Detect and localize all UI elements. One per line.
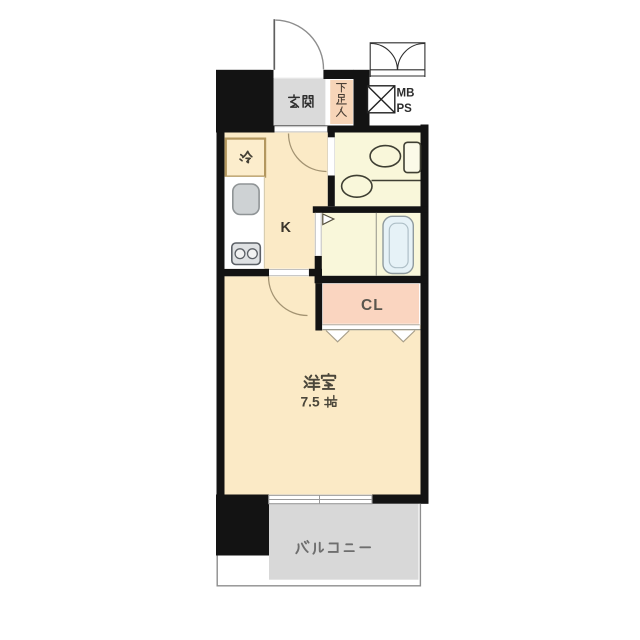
svg-text:PS: PS (397, 103, 413, 115)
svg-text:7.5: 7.5 (301, 395, 321, 410)
svg-text:CL: CL (361, 297, 384, 314)
svg-text:K: K (281, 220, 292, 236)
svg-text:MB: MB (397, 87, 415, 99)
